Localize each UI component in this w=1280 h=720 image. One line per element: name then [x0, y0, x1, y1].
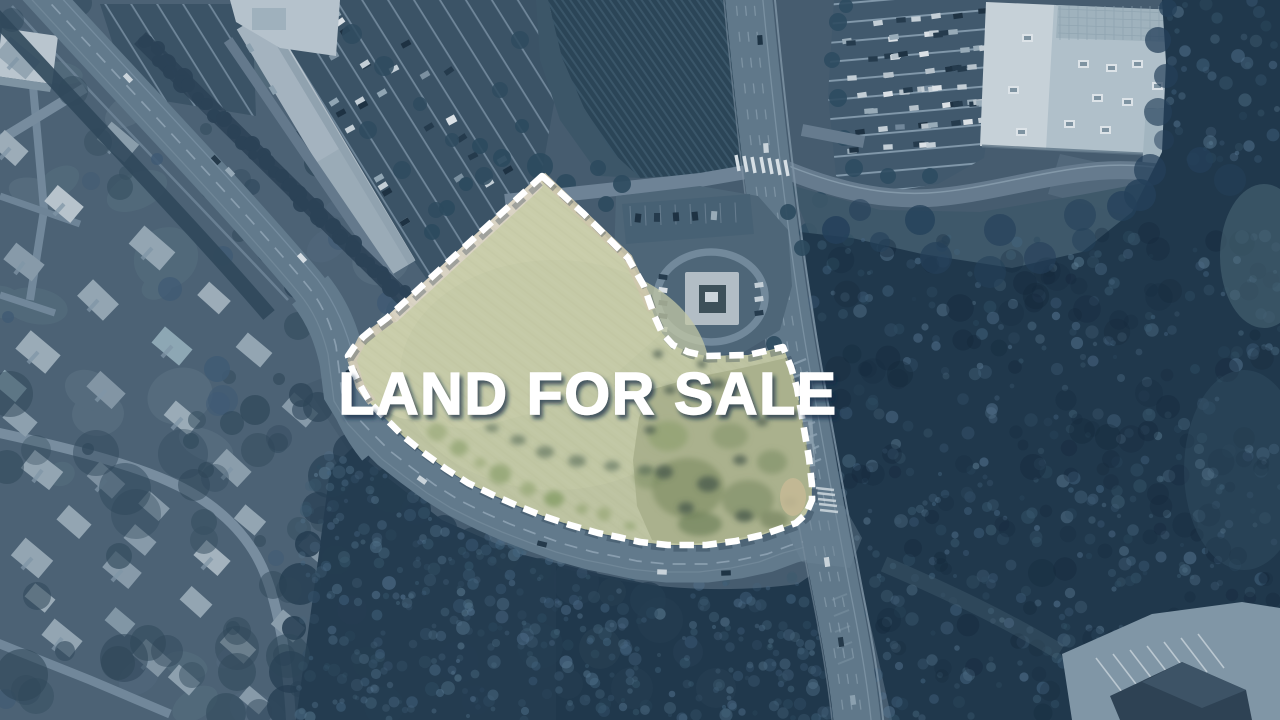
svg-text:LAND FOR SALE: LAND FOR SALE: [338, 361, 837, 427]
